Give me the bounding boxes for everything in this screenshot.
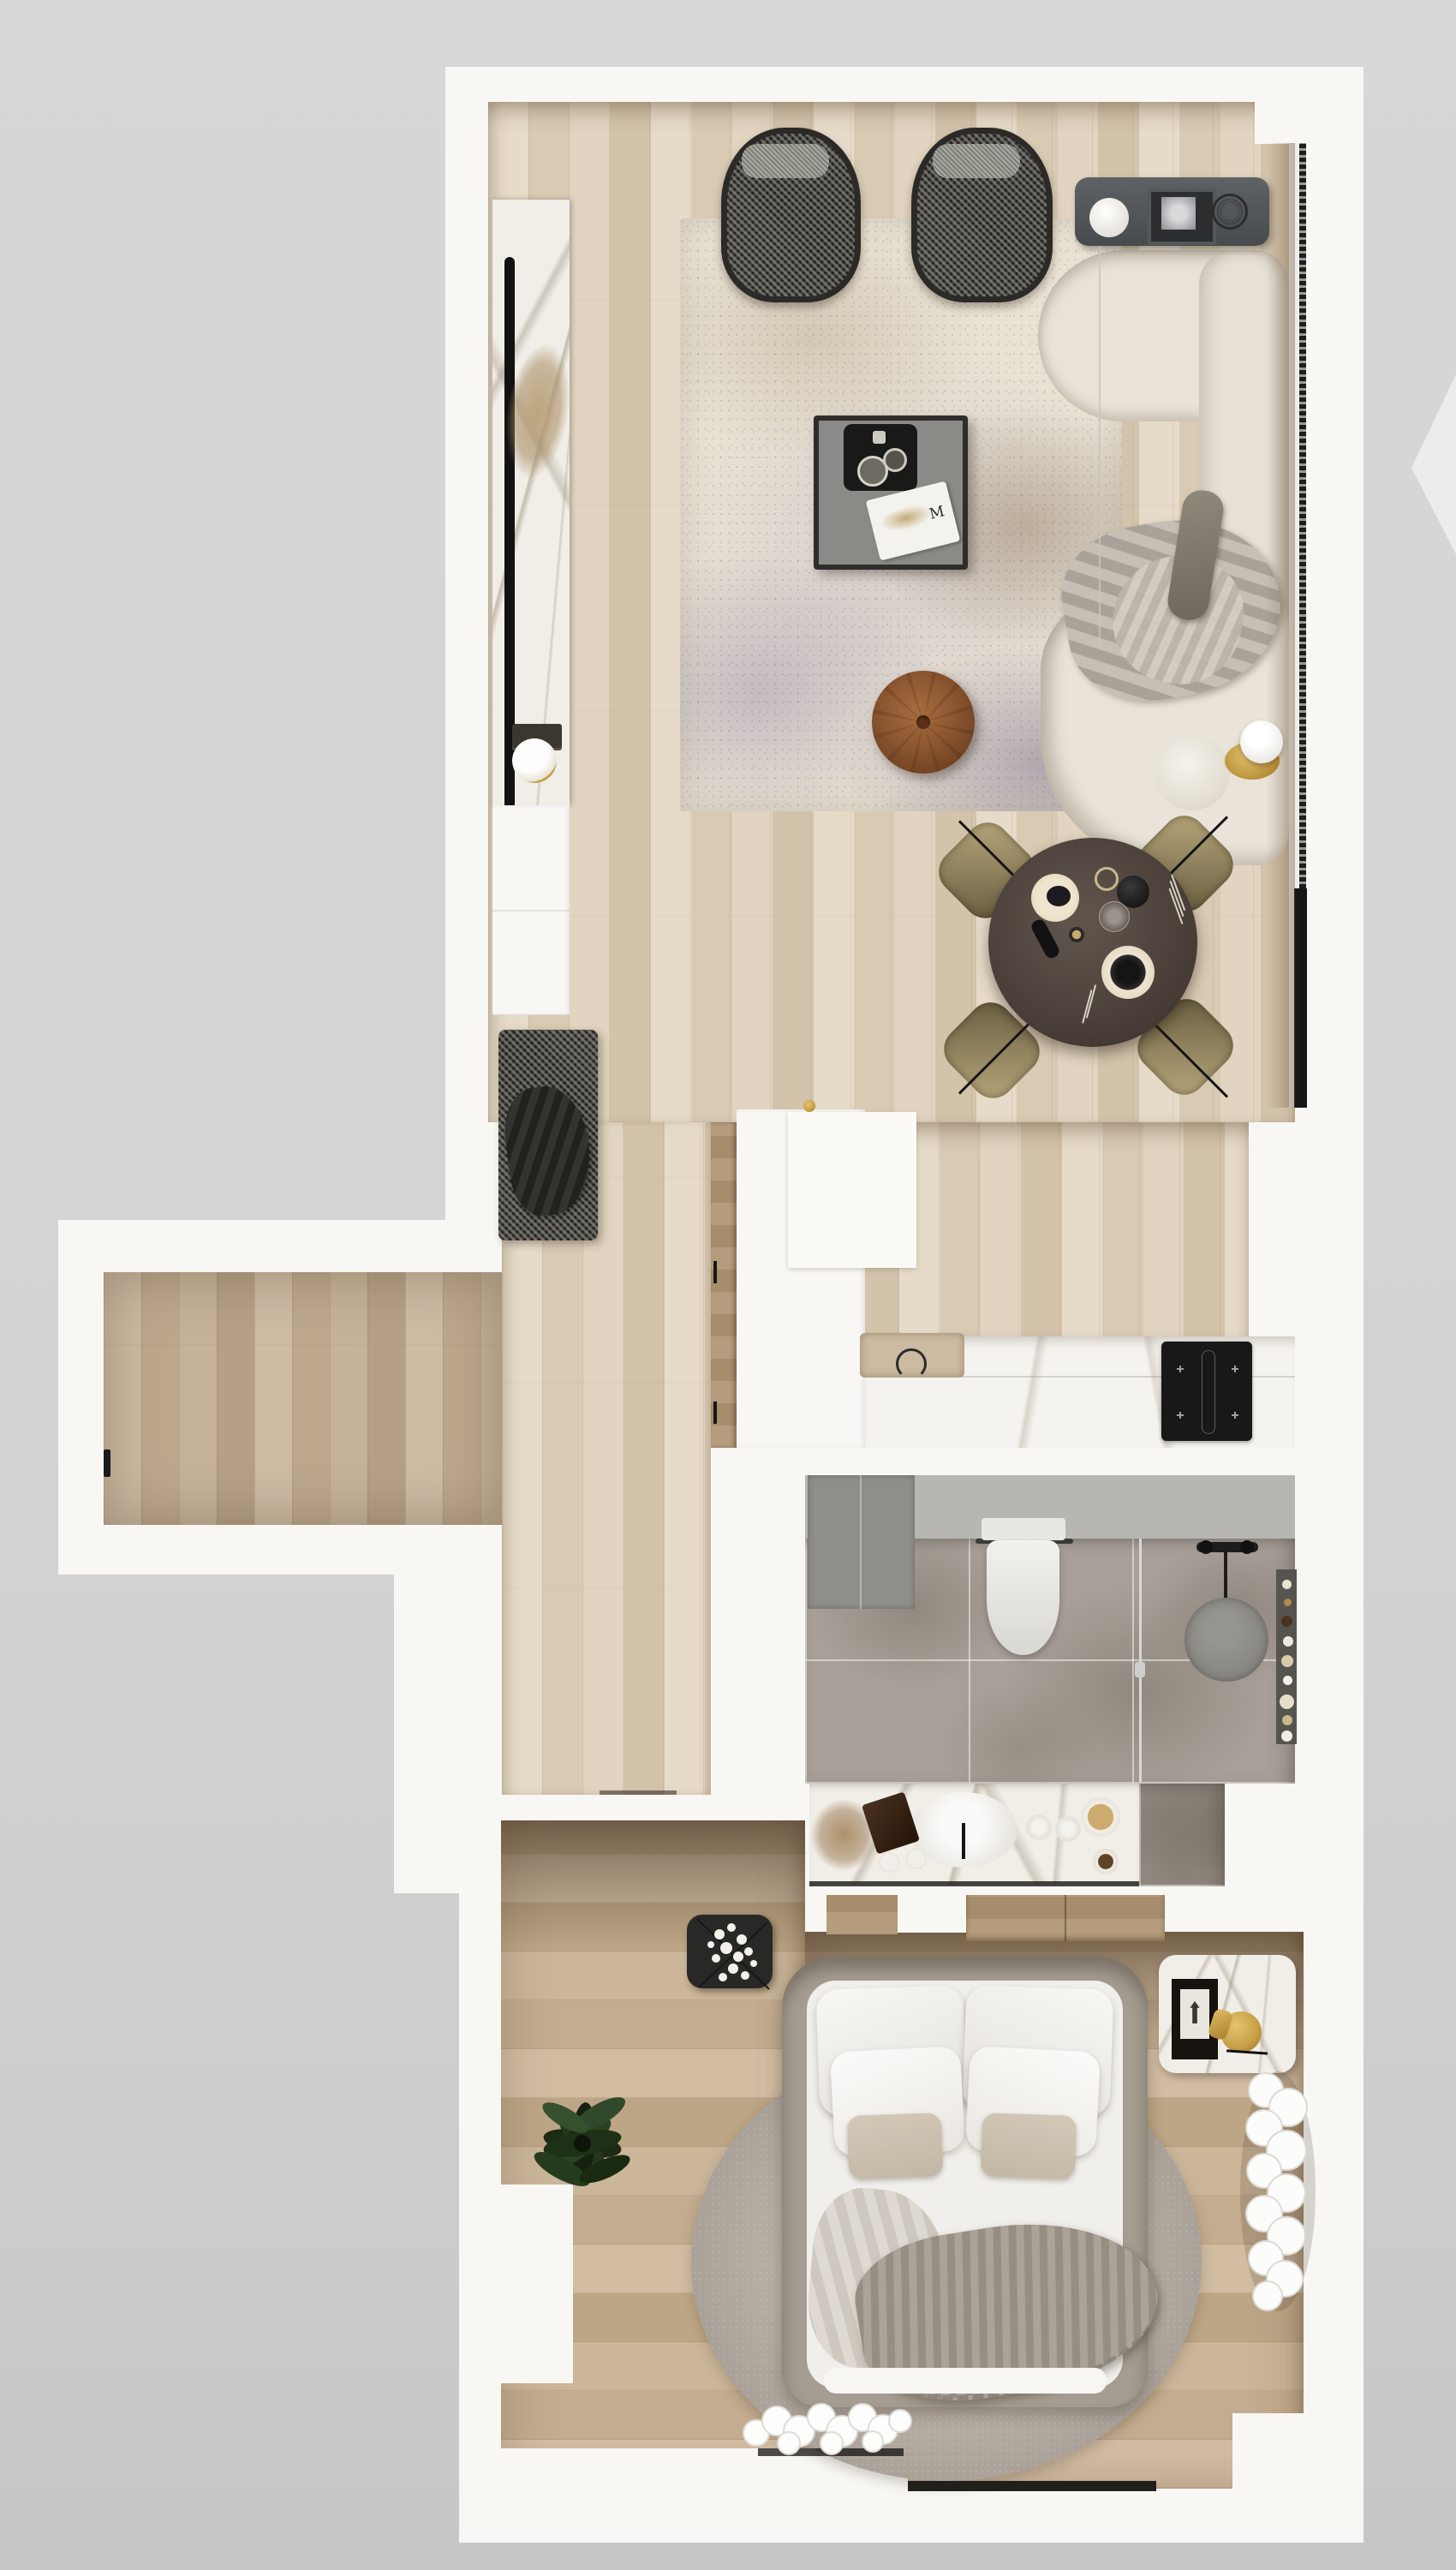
background-wedge-artifact: [1411, 374, 1456, 554]
wire-sculpture: [1212, 194, 1248, 230]
vanity-jar: [879, 1852, 899, 1873]
sofa-round-cushion: [1155, 735, 1230, 810]
wardrobe-seam: [1065, 1895, 1066, 1941]
potted-plant: [497, 2039, 677, 2253]
armchair-right-headrest: [933, 144, 1020, 178]
floor-shadow-right: [1266, 143, 1295, 1108]
kitchen-faucet: [896, 1348, 927, 1379]
vanity-jar: [1055, 1816, 1081, 1842]
shower-glass: [1139, 1539, 1142, 1782]
wardrobe-left: [826, 1895, 898, 1934]
pantry-handle-2: [713, 1402, 717, 1424]
entry-door-handle: [104, 1449, 110, 1477]
hallway-floor: [104, 1272, 502, 1525]
shower-stem: [1224, 1552, 1227, 1600]
bathroom-tile-lower: [1139, 1784, 1225, 1886]
bath-cabinet-seam: [860, 1475, 862, 1609]
pouf-button: [916, 715, 930, 729]
vanity-jar: [1026, 1814, 1052, 1840]
floor-lamp-globe: [1240, 720, 1283, 763]
napkin-ring: [1095, 867, 1119, 891]
lamp-cord: [1099, 246, 1101, 648]
wine-glass: [1099, 901, 1130, 932]
flower-branches: [682, 1904, 785, 2006]
toiletry: [1280, 1694, 1294, 1709]
shower-drain-circle: [1184, 1598, 1268, 1682]
toiletry: [1282, 1715, 1292, 1725]
toiletry: [1283, 1636, 1293, 1647]
basin-faucet: [962, 1823, 965, 1859]
table-lamp: [1089, 198, 1129, 237]
toiletry: [1284, 1599, 1292, 1606]
pantry-handle: [713, 1261, 717, 1283]
sphere-vase: [512, 738, 557, 783]
tray-glass-square: [873, 431, 886, 444]
cooktop-mark: [1177, 1412, 1184, 1419]
framed-art-inner: [1161, 197, 1196, 230]
toiletry: [1283, 1676, 1292, 1685]
vanity-front-edge: [809, 1881, 1139, 1886]
shower-head: [1199, 1540, 1213, 1554]
pantry-cabinet: [711, 1122, 737, 1448]
toiletry: [1281, 1616, 1292, 1627]
wardrobe-gap: [898, 1895, 966, 1933]
magazine-sprig: [878, 501, 934, 535]
berries: [1047, 886, 1071, 906]
media-cabinet-seam: [492, 910, 570, 911]
bowl-dark: [1101, 946, 1155, 999]
toilet: [987, 1540, 1059, 1655]
toilet-tank: [982, 1518, 1065, 1540]
cooktop-mark: [1232, 1366, 1238, 1372]
cooktop-mark: [1177, 1366, 1184, 1372]
floor-plan-canvas: M: [0, 0, 1456, 2570]
under-bed-strip: [908, 2481, 1156, 2491]
vanity-bowl: [1081, 1797, 1120, 1837]
shower-head-2: [1240, 1540, 1254, 1554]
toiletry: [1282, 1580, 1292, 1589]
fur-bench: [1225, 2063, 1328, 2320]
cooktop-mark: [1232, 1412, 1238, 1419]
shower-glass-handle: [1135, 1662, 1145, 1677]
tray-dish-small: [883, 448, 907, 472]
kitchen-gold-knob: [803, 1100, 815, 1112]
vanity-jar: [906, 1849, 927, 1869]
armchair-left-headrest: [742, 144, 829, 178]
dining-table: [988, 838, 1197, 1047]
toiletry: [1281, 1730, 1292, 1742]
spice-dish: [1069, 927, 1084, 942]
toiletry: [1281, 1655, 1293, 1667]
top-right-wall-jog: [1255, 102, 1364, 144]
kitchen-upper-cabinet: [788, 1112, 916, 1268]
fur-slippers: [732, 2383, 921, 2477]
bedroom-threshold: [600, 1790, 677, 1795]
window-frame-dark: [1294, 888, 1307, 1108]
cooktop-center-strip: [1202, 1350, 1215, 1434]
bedroom-bottom-right-notch: [1232, 2413, 1304, 2489]
vanity-dish: [1093, 1849, 1119, 1874]
